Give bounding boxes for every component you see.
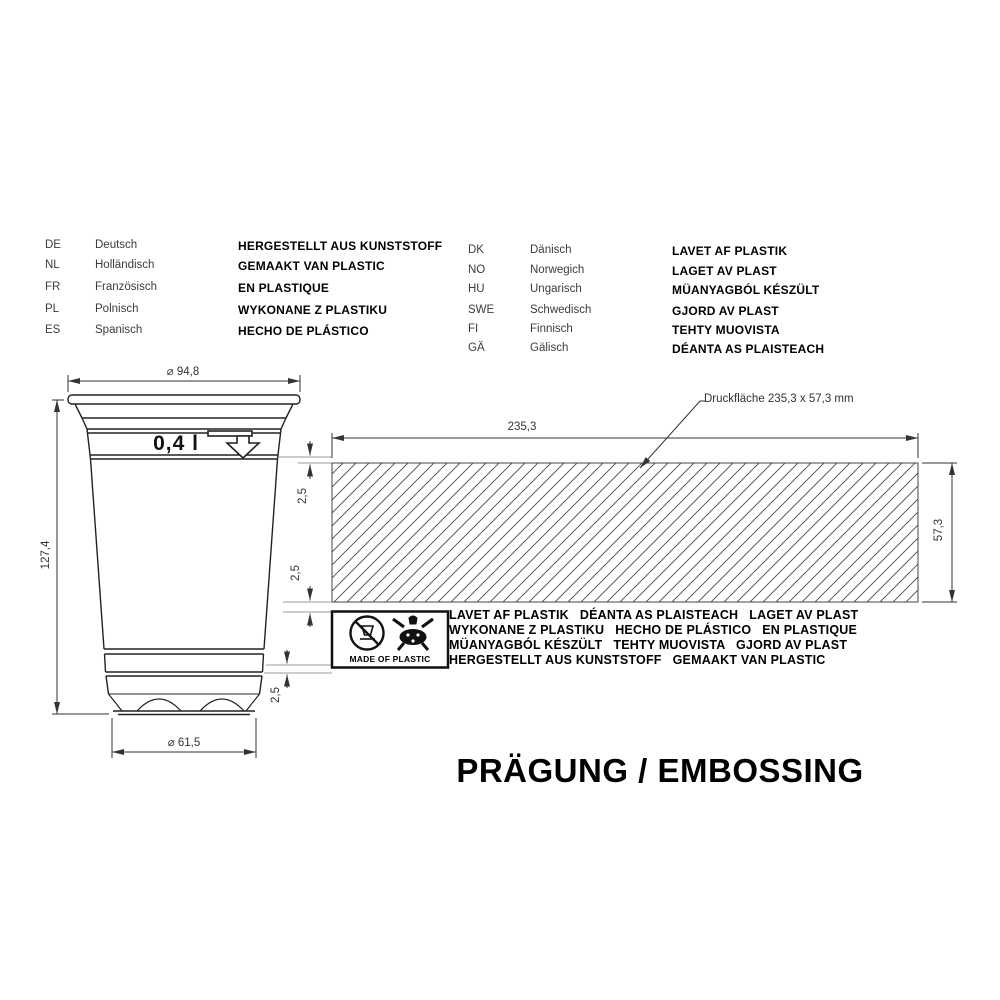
dimension-print-width (332, 433, 918, 458)
language-code: DE (45, 239, 61, 251)
language-code: ES (45, 324, 60, 336)
translation-text: LAGET AV PLAST (672, 264, 777, 278)
language-row: NO Norwegich LAGET AV PLAST (468, 264, 888, 279)
language-code: FI (468, 323, 478, 335)
translation-text: GEMAAKT VAN PLASTIC (238, 259, 385, 273)
language-code: HU (468, 283, 485, 295)
language-name: Finnisch (530, 323, 573, 335)
technical-drawing-page: DE Deutsch HERGESTELLT AUS KUNSTSTOFF NL… (0, 0, 1000, 1000)
language-name: Norwegich (530, 264, 584, 276)
top-diameter-label: ⌀ 94,8 (133, 364, 233, 378)
translation-text: HERGESTELLT AUS KUNSTSTOFF (238, 239, 442, 253)
language-name: Spanisch (95, 324, 142, 336)
offset-bottom-label: 2,5 (270, 675, 282, 715)
print-height-label: 57,3 (933, 510, 945, 550)
language-row: PL Polnisch WYKONANE Z PLASTIKU (45, 303, 465, 318)
language-name: Schwedisch (530, 304, 591, 316)
language-row: HU Ungarisch MÜANYAGBÓL KÉSZÜLT (468, 283, 888, 298)
language-name: Deutsch (95, 239, 137, 251)
language-code: FR (45, 281, 60, 293)
embossing-line: MÜANYAGBÓL KÉSZÜLT TEHTY MUOVISTA GJORD … (449, 638, 847, 652)
language-name: Dänisch (530, 244, 572, 256)
translation-text: MÜANYAGBÓL KÉSZÜLT (672, 283, 819, 297)
made-of-plastic-label: MADE OF PLASTIC (340, 654, 440, 664)
embossing-line: HERGESTELLT AUS KUNSTSTOFF GEMAAKT VAN P… (449, 653, 826, 667)
language-name: Gälisch (530, 342, 568, 354)
language-name: Französisch (95, 281, 157, 293)
language-row: DE Deutsch HERGESTELLT AUS KUNSTSTOFF (45, 239, 465, 254)
language-code: NO (468, 264, 485, 276)
print-width-label: 235,3 (472, 421, 572, 433)
translation-text: TEHTY MUOVISTA (672, 323, 780, 337)
volume-label: 0,4 l (136, 432, 216, 456)
language-code: PL (45, 303, 59, 315)
embossing-line: LAVET AF PLASTIK DÉANTA AS PLAISTEACH LA… (449, 608, 858, 622)
translation-text: DÉANTA AS PLAISTEACH (672, 342, 824, 356)
print-area-leader-line (640, 401, 706, 468)
dimension-height (52, 400, 109, 714)
translation-text: EN PLASTIQUE (238, 281, 329, 295)
language-name: Polnisch (95, 303, 138, 315)
translation-text: GJORD AV PLAST (672, 304, 779, 318)
language-name: Holländisch (95, 259, 154, 271)
language-row: GÄ Gälisch DÉANTA AS PLAISTEACH (468, 342, 888, 357)
print-area-hatch (332, 463, 918, 602)
translation-text: HECHO DE PLÁSTICO (238, 324, 369, 338)
language-code: SWE (468, 304, 494, 316)
language-name: Ungarisch (530, 283, 582, 295)
language-row: NL Holländisch GEMAAKT VAN PLASTIC (45, 259, 465, 274)
bottom-diameter-label: ⌀ 61,5 (134, 735, 234, 749)
language-code: NL (45, 259, 60, 271)
language-row: SWE Schwedisch GJORD AV PLAST (468, 304, 888, 319)
language-row: FR Französisch EN PLASTIQUE (45, 281, 465, 296)
translation-text: WYKONANE Z PLASTIKU (238, 303, 387, 317)
offset-top-label: 2,5 (297, 476, 309, 516)
print-area-callout: Druckfläche 235,3 x 57,3 mm (704, 393, 854, 405)
offset-middle-label: 2,5 (290, 553, 302, 593)
drawing-canvas (0, 0, 1000, 1000)
language-row: ES Spanisch HECHO DE PLÁSTICO (45, 324, 465, 339)
language-row: DK Dänisch LAVET AF PLASTIK (468, 244, 888, 259)
page-title: PRÄGUNG / EMBOSSING (440, 752, 880, 790)
language-code: GÄ (468, 342, 485, 354)
language-row: FI Finnisch TEHTY MUOVISTA (468, 323, 888, 338)
embossing-line: WYKONANE Z PLASTIKU HECHO DE PLÁSTICO EN… (449, 623, 857, 637)
translation-text: LAVET AF PLASTIK (672, 244, 787, 258)
height-label: 127,4 (40, 535, 52, 575)
language-code: DK (468, 244, 484, 256)
